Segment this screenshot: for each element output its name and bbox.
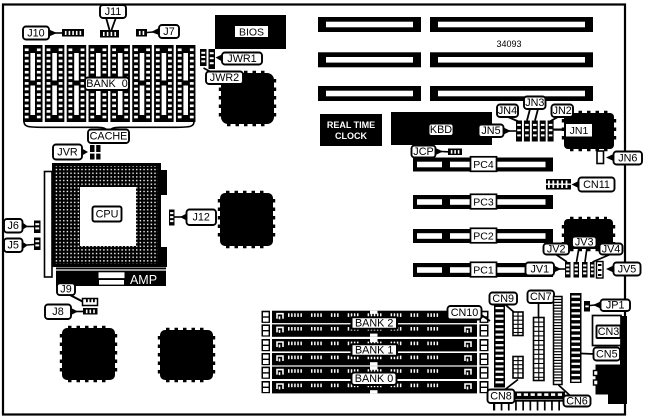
svg-text:JN5: JN5	[481, 125, 500, 137]
svg-text:JCP: JCP	[413, 146, 433, 158]
svg-text:PC2: PC2	[473, 231, 494, 243]
svg-text:J8: J8	[52, 306, 63, 318]
svg-text:AMP: AMP	[130, 273, 157, 287]
svg-text:CLOCK: CLOCK	[335, 131, 367, 141]
svg-text:JVR: JVR	[57, 146, 78, 158]
svg-text:JV1: JV1	[530, 263, 549, 275]
svg-text:JN6: JN6	[618, 152, 637, 164]
svg-text:CN3: CN3	[598, 326, 620, 338]
svg-text:J5: J5	[7, 240, 18, 252]
svg-text:PC1: PC1	[473, 265, 494, 277]
svg-text:J12: J12	[192, 212, 209, 224]
svg-text:BANK 0: BANK 0	[355, 373, 393, 385]
svg-text:KBD: KBD	[430, 124, 452, 136]
svg-text:CACHE: CACHE	[90, 131, 128, 143]
svg-text:JWR2: JWR2	[210, 72, 239, 84]
svg-text:CN7: CN7	[530, 291, 552, 303]
svg-text:JN1: JN1	[570, 125, 589, 137]
svg-text:REAL TIME: REAL TIME	[327, 120, 375, 130]
svg-text:34093: 34093	[496, 39, 521, 49]
svg-text:BANK 0: BANK 0	[86, 78, 127, 90]
svg-text:JV5: JV5	[618, 263, 637, 275]
svg-text:J11: J11	[105, 6, 122, 18]
svg-text:JN3: JN3	[525, 97, 544, 109]
svg-text:JWR1: JWR1	[227, 53, 256, 65]
svg-text:PC3: PC3	[473, 197, 494, 209]
svg-text:CN11: CN11	[583, 179, 610, 191]
svg-text:J10: J10	[27, 27, 44, 39]
svg-text:JP1: JP1	[606, 300, 625, 312]
svg-text:CN6: CN6	[566, 395, 588, 407]
svg-text:PC4: PC4	[473, 159, 494, 171]
svg-text:J6: J6	[7, 220, 18, 232]
svg-text:BIOS: BIOS	[239, 27, 264, 39]
svg-text:BANK 2: BANK 2	[355, 317, 393, 329]
svg-text:CN8: CN8	[490, 391, 512, 403]
svg-text:J7: J7	[163, 26, 174, 38]
svg-text:CN10: CN10	[451, 307, 479, 319]
svg-text:CPU: CPU	[96, 208, 119, 220]
svg-text:JV3: JV3	[575, 236, 594, 248]
svg-text:JV4: JV4	[602, 243, 621, 255]
svg-text:J9: J9	[60, 284, 71, 296]
svg-text:JV2: JV2	[547, 243, 566, 255]
svg-text:JN2: JN2	[553, 105, 572, 117]
svg-text:CN5: CN5	[596, 348, 618, 360]
svg-text:BANK 1: BANK 1	[355, 344, 393, 356]
svg-text:JN4: JN4	[498, 105, 517, 117]
svg-text:CN9: CN9	[492, 293, 514, 305]
